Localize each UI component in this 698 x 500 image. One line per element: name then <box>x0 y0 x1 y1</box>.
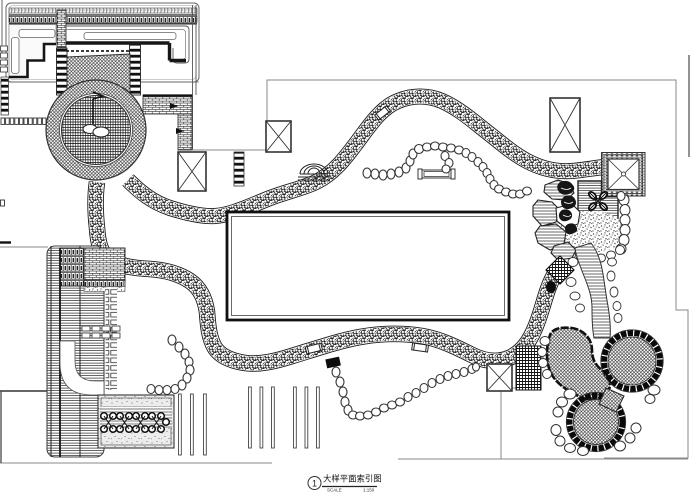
svg-text:1:150: 1:150 <box>363 488 375 493</box>
svg-text:SCALE: SCALE <box>327 488 342 493</box>
svg-text:大样平面索引图: 大样平面索引图 <box>323 474 382 484</box>
svg-text:1: 1 <box>312 479 317 489</box>
